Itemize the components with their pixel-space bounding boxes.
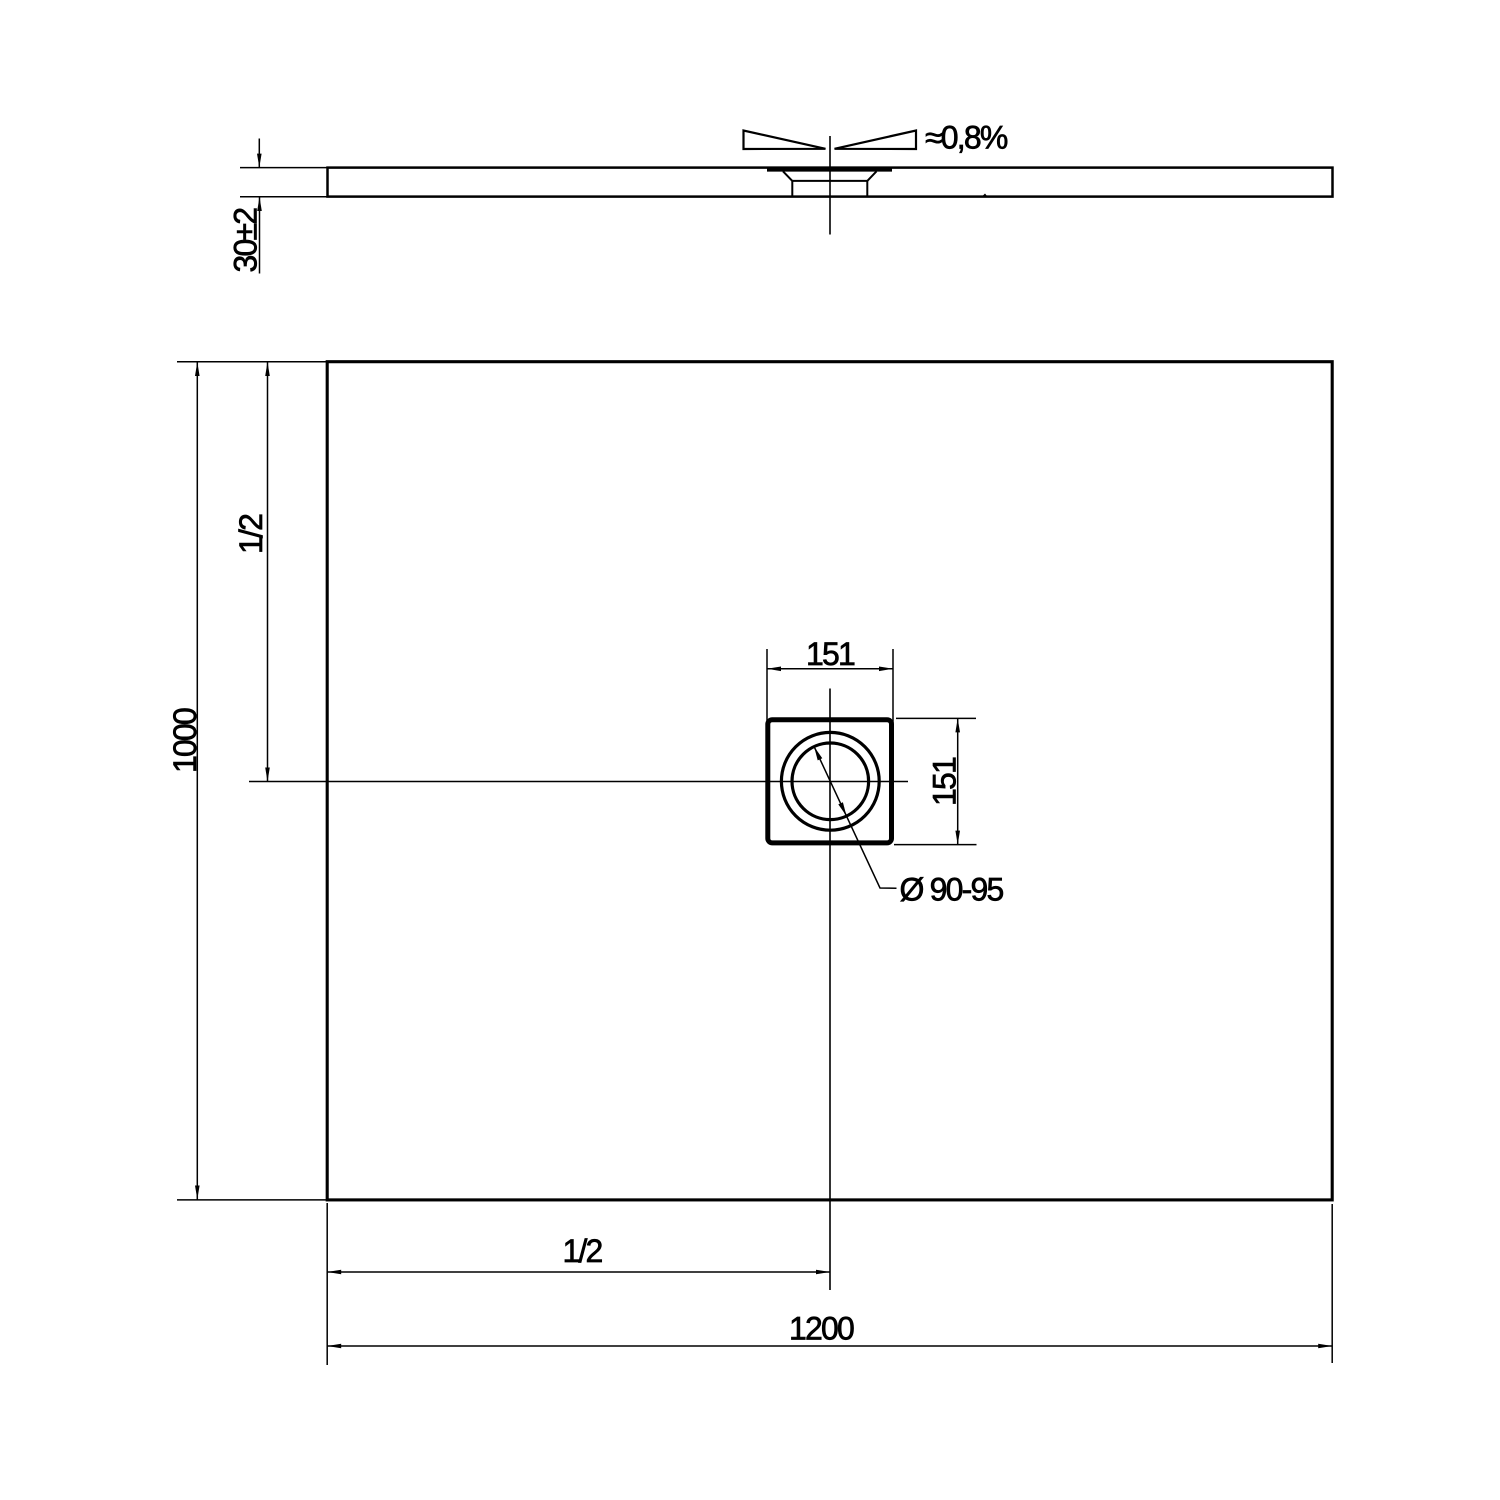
svg-text:151: 151 <box>806 636 855 672</box>
svg-text:1/2: 1/2 <box>233 514 269 554</box>
svg-text:1200: 1200 <box>789 1311 854 1347</box>
svg-text:30±2: 30±2 <box>228 208 264 273</box>
svg-text:1000: 1000 <box>167 708 203 773</box>
svg-text:1/2: 1/2 <box>562 1233 602 1269</box>
svg-text:≈0,8%: ≈0,8% <box>925 120 1008 156</box>
svg-text:151: 151 <box>927 757 963 806</box>
svg-text:Ø 90-95: Ø 90-95 <box>900 872 1004 908</box>
